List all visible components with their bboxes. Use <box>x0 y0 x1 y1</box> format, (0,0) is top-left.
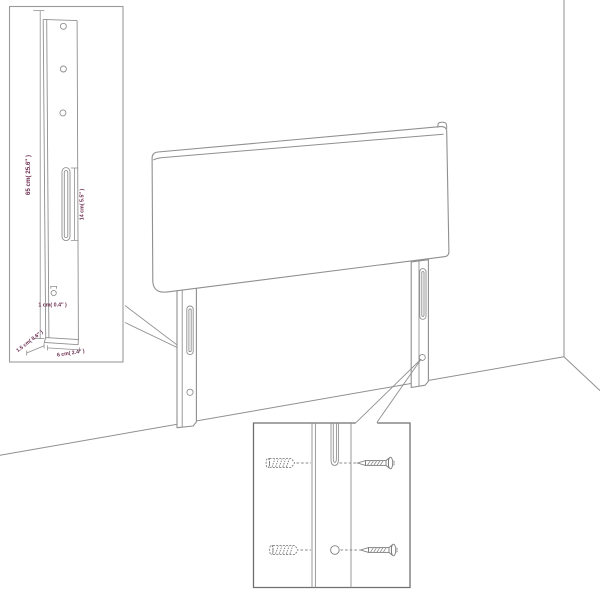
slot-height-dimension-label: 14 cm( 5.5″ ) <box>79 189 85 221</box>
headboard <box>152 122 449 292</box>
right-leg <box>411 260 428 388</box>
callout-lines-right <box>356 359 421 423</box>
hole-width-dimension-label: 1 cm( 0.4″ ) <box>38 303 67 309</box>
left-leg <box>177 287 196 427</box>
leg-detail-inset: 65 cm( 25.6″ ) 14 cm( 5.5″ ) 1 cm( 0.4″ … <box>10 7 124 363</box>
headboard-assembly-diagram: 65 cm( 25.6″ ) 14 cm( 5.5″ ) 1 cm( 0.4″ … <box>0 0 600 600</box>
headboard-panel <box>152 127 449 293</box>
product-diagram-image: 65 cm( 25.6″ ) 14 cm( 5.5″ ) 1 cm( 0.4″ … <box>0 0 600 600</box>
height-dimension-label: 65 cm( 25.6″ ) <box>25 155 32 195</box>
hardware-detail-inset <box>254 423 411 588</box>
callout-lines-left <box>125 306 177 348</box>
